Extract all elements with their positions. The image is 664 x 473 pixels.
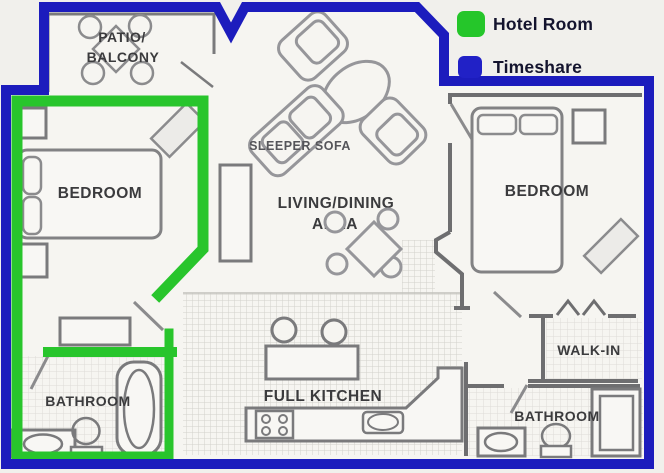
hotel-room-legend-label: Hotel Room [493,14,593,34]
wall-column [220,165,251,261]
legend: Hotel Room Timeshare [457,11,593,78]
hotel-room-swatch [457,11,485,37]
kitchen-island-icon [266,346,358,379]
bathroom-sink-icon [478,428,525,456]
timeshare-swatch [458,56,482,78]
bathroom-right-label: BATHROOM [514,408,599,424]
dresser-icon [60,318,130,345]
walk-in-label: WALK-IN [557,342,620,358]
sleeper-sofa-label: SLEEPER SOFA [249,139,351,153]
living-label-line1: LIVING/DINING [278,195,395,212]
bedroom-right-label: BEDROOM [505,183,589,200]
timeshare-legend-label: Timeshare [493,57,582,77]
floor-plan-svg: PATIO/ BALCONY BEDROOM [0,0,664,473]
floor-plan-image: PATIO/ BALCONY BEDROOM [0,0,664,473]
kitchen-label: FULL KITCHEN [264,388,383,405]
stool-icon [272,318,296,342]
bathroom-left-label: BATHROOM [45,393,130,409]
patio-label-line2: BALCONY [87,49,160,65]
patio-label-line1: PATIO/ [98,29,146,45]
stool-icon [322,320,346,344]
nightstand-icon [573,110,605,143]
bedroom-left-label: BEDROOM [58,185,142,202]
